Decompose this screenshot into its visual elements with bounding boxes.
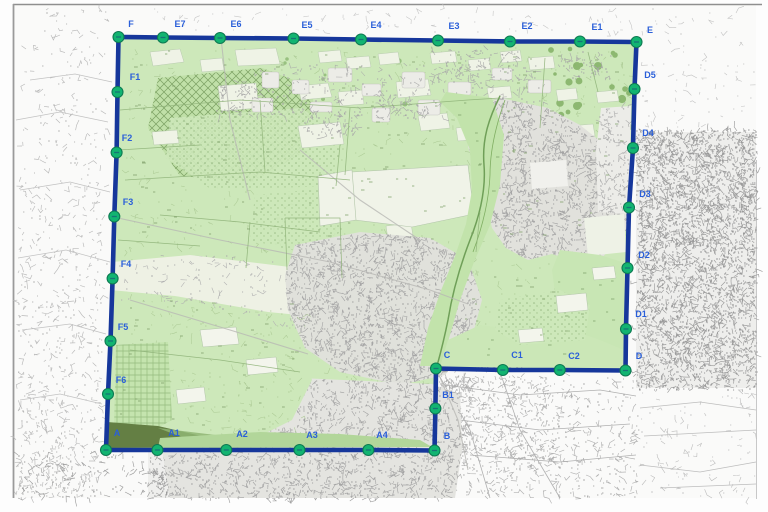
svg-text:A3: A3	[306, 430, 318, 440]
svg-text:F5: F5	[118, 322, 129, 332]
svg-text:D5: D5	[644, 70, 656, 80]
svg-text:F2: F2	[122, 133, 133, 143]
svg-text:F4: F4	[121, 259, 132, 269]
svg-text:E7: E7	[174, 19, 185, 29]
svg-text:A1: A1	[168, 428, 180, 438]
svg-text:A2: A2	[236, 429, 248, 439]
svg-text:C2: C2	[568, 351, 580, 361]
svg-text:E3: E3	[448, 21, 459, 31]
svg-text:C: C	[444, 350, 451, 360]
svg-text:E: E	[647, 25, 653, 35]
svg-text:F1: F1	[130, 72, 141, 82]
svg-text:A4: A4	[376, 430, 388, 440]
svg-text:D3: D3	[639, 189, 651, 199]
svg-text:E5: E5	[301, 20, 312, 30]
svg-text:F3: F3	[123, 197, 134, 207]
svg-text:C1: C1	[511, 350, 523, 360]
svg-text:D4: D4	[642, 128, 654, 138]
svg-text:B1: B1	[442, 390, 454, 400]
svg-text:D: D	[636, 351, 643, 361]
svg-text:A: A	[114, 428, 121, 438]
svg-text:D2: D2	[638, 250, 650, 260]
svg-text:E1: E1	[591, 22, 602, 32]
svg-text:E6: E6	[230, 19, 241, 29]
svg-text:E4: E4	[370, 20, 381, 30]
svg-text:F6: F6	[116, 375, 127, 385]
svg-text:D1: D1	[635, 309, 647, 319]
svg-text:E2: E2	[521, 21, 532, 31]
svg-text:B: B	[444, 431, 451, 441]
svg-text:F: F	[128, 19, 134, 29]
